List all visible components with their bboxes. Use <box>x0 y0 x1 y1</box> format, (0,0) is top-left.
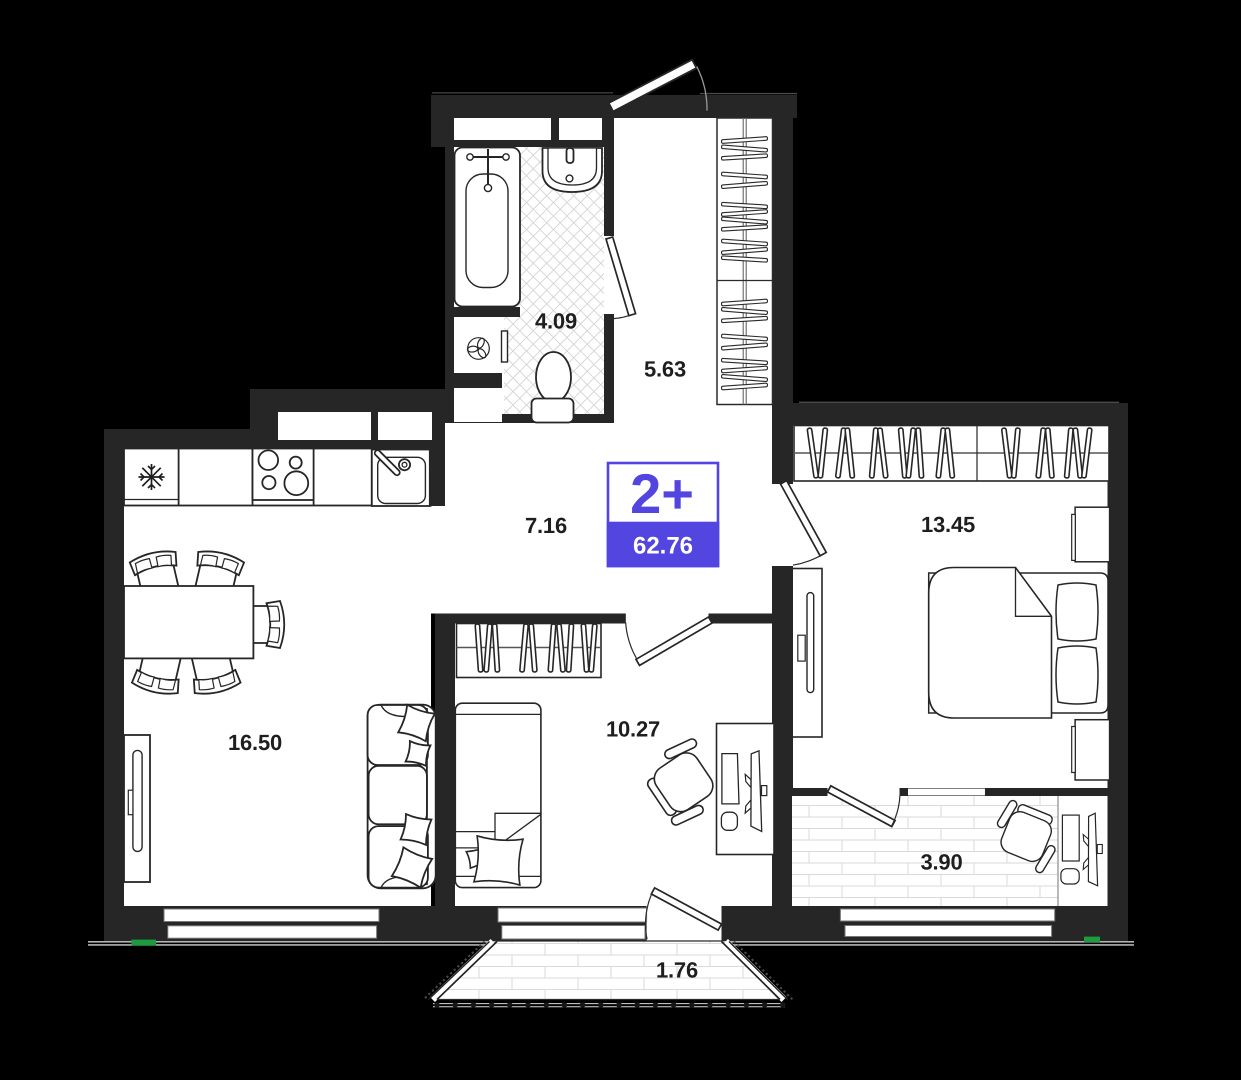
svg-text:5.63: 5.63 <box>644 357 686 382</box>
svg-text:7.16: 7.16 <box>525 513 567 538</box>
svg-text:4.09: 4.09 <box>535 309 577 334</box>
svg-text:1.76: 1.76 <box>656 958 698 983</box>
svg-text:10.27: 10.27 <box>606 717 660 742</box>
svg-text:3.90: 3.90 <box>920 850 962 875</box>
svg-text:16.50: 16.50 <box>228 730 282 755</box>
svg-text:2+: 2+ <box>630 462 694 525</box>
svg-text:62.76: 62.76 <box>633 533 693 560</box>
svg-text:13.45: 13.45 <box>921 512 975 537</box>
